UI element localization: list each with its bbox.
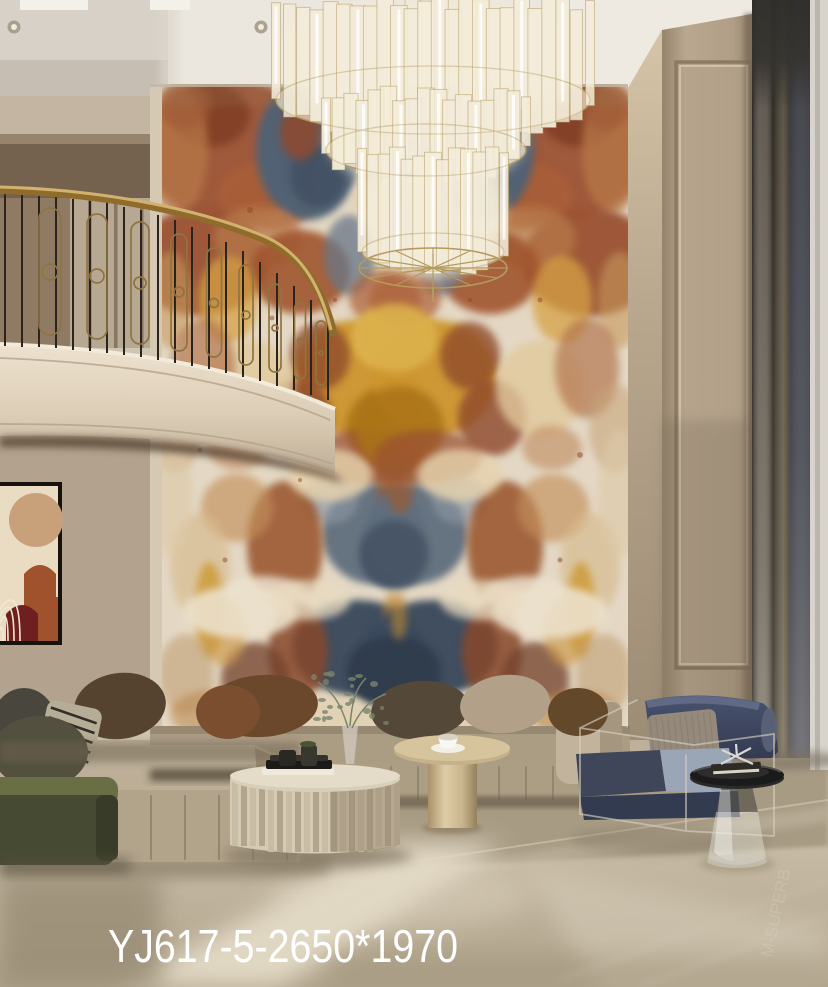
- svg-text:YJ617-5-2650*1970: YJ617-5-2650*1970: [108, 920, 458, 972]
